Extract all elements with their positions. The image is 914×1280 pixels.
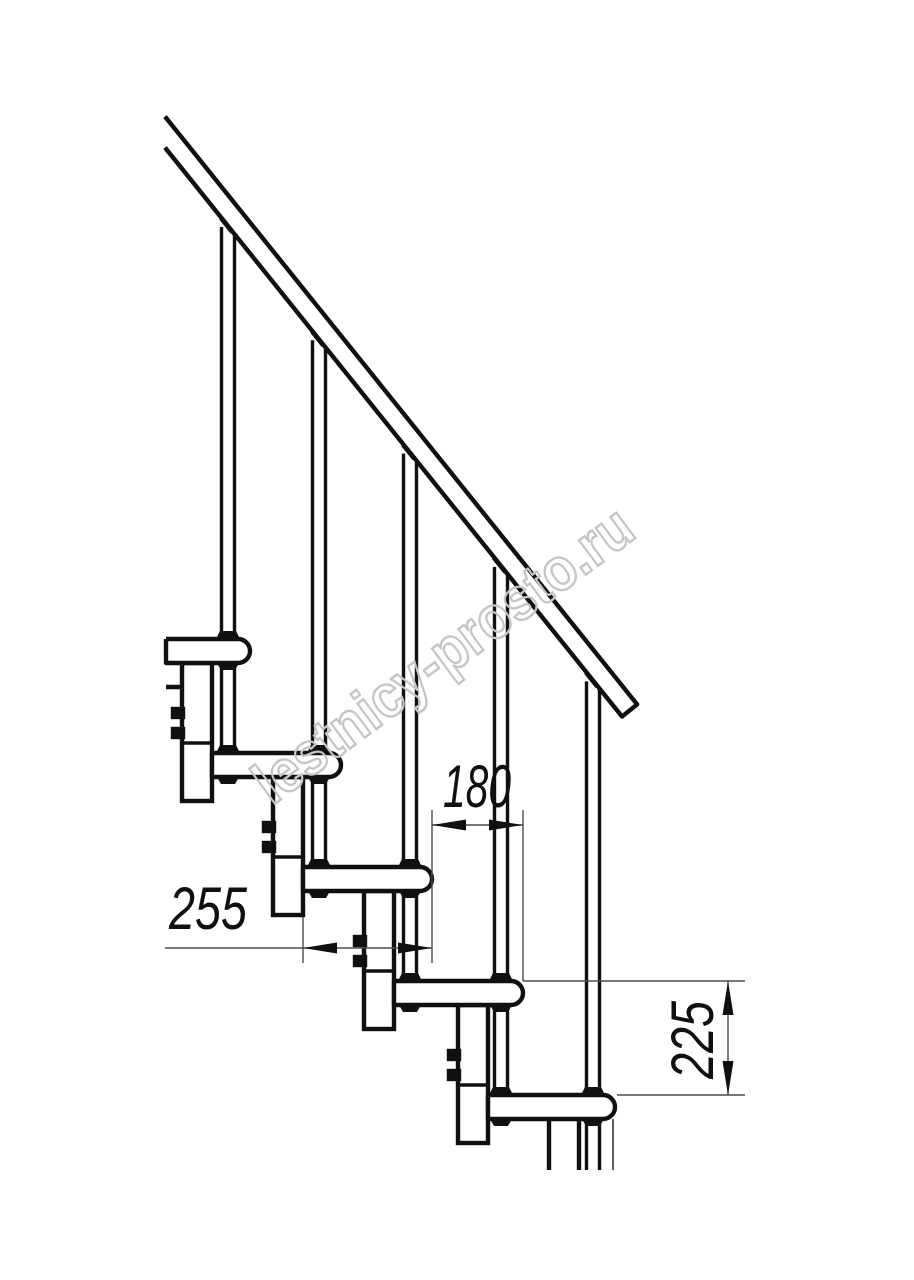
staircase-drawing-canvas: 255180225lestnicy-prosto.ru: [0, 0, 914, 1280]
dimension-text-step-rise: 225: [659, 1001, 726, 1080]
dimension-text-tread-depth: 255: [168, 875, 247, 942]
dimension-text-step-run: 180: [443, 753, 511, 820]
screenshot-page: 255180225lestnicy-prosto.ru: [0, 0, 914, 1280]
staircase-technical-drawing: 255180225lestnicy-prosto.ru: [0, 0, 914, 1280]
